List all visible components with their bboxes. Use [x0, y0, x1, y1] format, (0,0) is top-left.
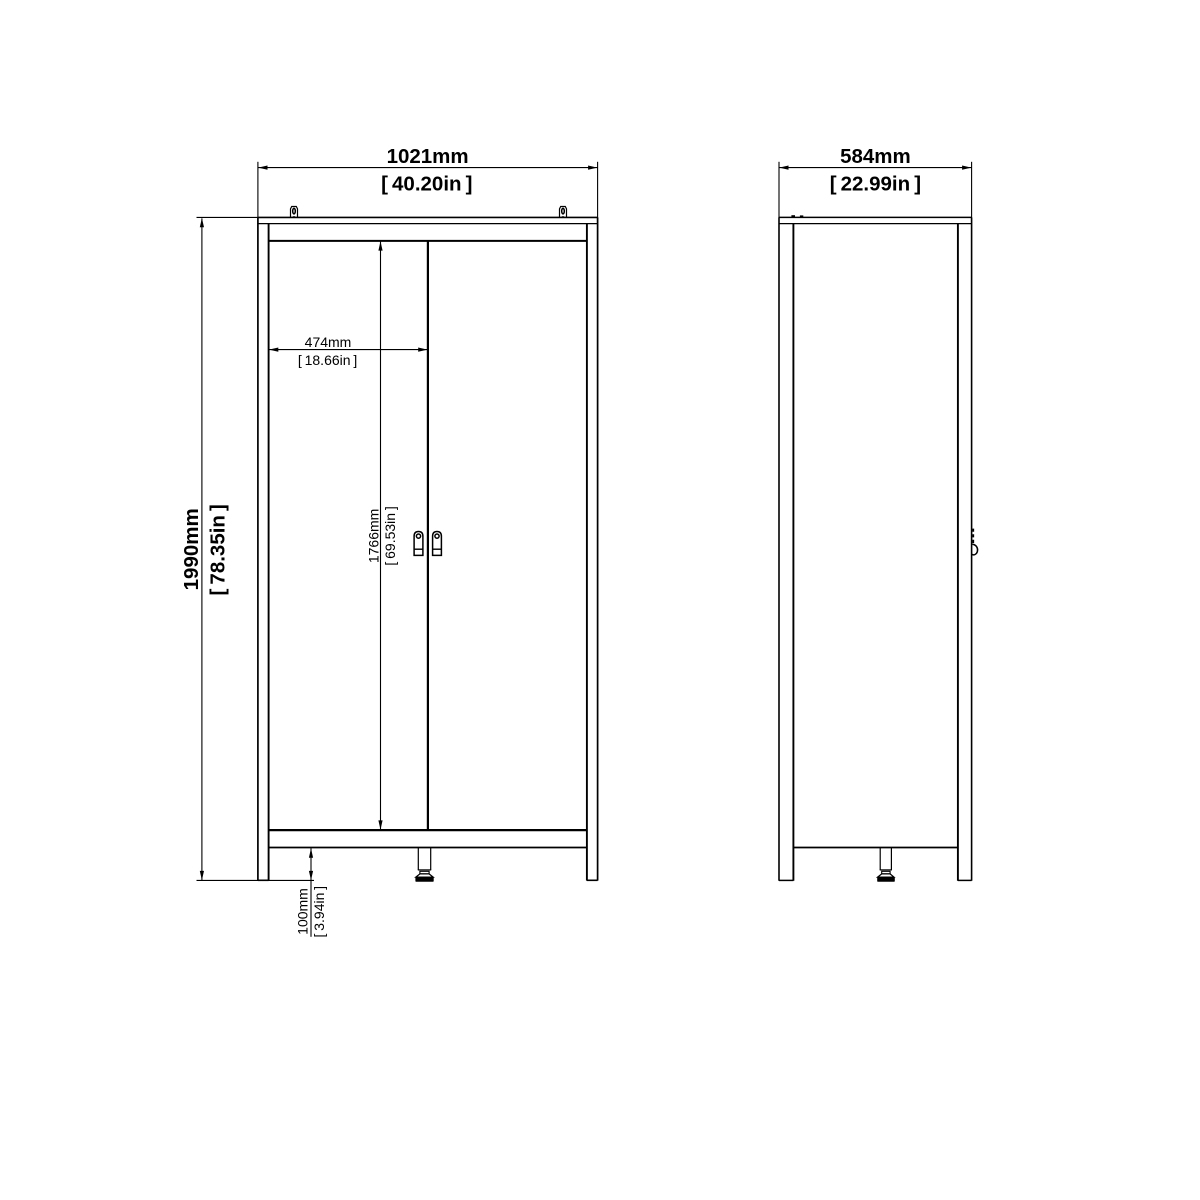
svg-text:1990mm: 1990mm: [180, 508, 203, 590]
svg-text:1766mm: 1766mm: [365, 509, 381, 563]
svg-text:[ 78.35in ]: [ 78.35in ]: [206, 504, 229, 595]
svg-text:[ 3.94in ]: [ 3.94in ]: [311, 886, 327, 938]
svg-text:[ 69.53in ]: [ 69.53in ]: [382, 506, 398, 565]
svg-text:[ 40.20in ]: [ 40.20in ]: [381, 172, 472, 195]
svg-text:100mm: 100mm: [294, 888, 310, 935]
svg-text:1021mm: 1021mm: [387, 145, 469, 168]
svg-text:474mm: 474mm: [305, 334, 352, 350]
svg-text:[ 18.66in ]: [ 18.66in ]: [298, 352, 357, 368]
svg-text:584mm: 584mm: [840, 145, 911, 168]
svg-text:[ 22.99in ]: [ 22.99in ]: [830, 172, 921, 195]
